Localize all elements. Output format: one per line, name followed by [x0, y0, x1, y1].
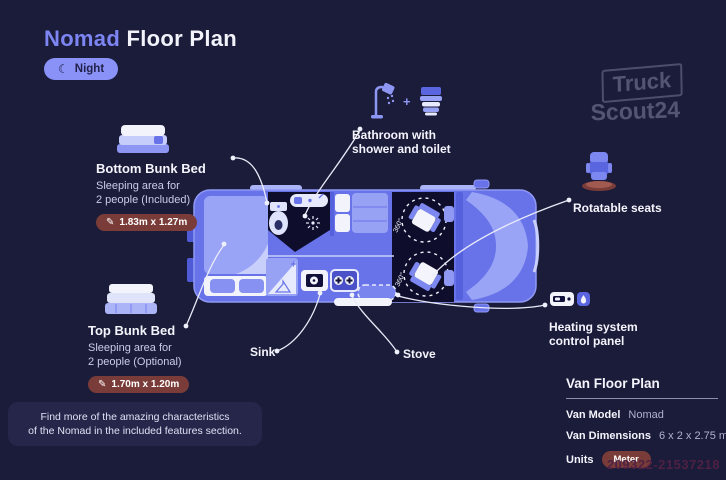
toilet-icon: [418, 86, 444, 116]
heating-label-1: Heating system: [549, 320, 638, 334]
rotatable-seat-icon: [577, 150, 621, 192]
connector-dots: [184, 127, 572, 355]
bottom-bunk-dimensions: 1.83m x 1.27m: [119, 217, 187, 228]
van-dimensions-value: 6 x 2 x 2.75 m: [659, 430, 726, 442]
rotatable-seats-label: Rotatable seats: [573, 201, 683, 215]
bottom-bunk-dimensions-badge: ✎ 1.83m x 1.27m: [96, 214, 197, 231]
info-row-dimensions: Van Dimensions 6 x 2 x 2.75 m: [566, 430, 718, 442]
stove-label: Stove: [403, 347, 436, 361]
sink-label: Sink: [250, 345, 275, 359]
callout-rotatable-seats: Rotatable seats: [573, 150, 683, 215]
connector-stove: [352, 296, 397, 352]
bottom-bunk-title: Bottom Bunk Bed: [96, 161, 231, 176]
features-note: Find more of the amazing characteristics…: [8, 402, 262, 446]
bottom-bunk-desc-2: 2 people (Included): [96, 194, 190, 206]
floor-plan-page: Nomad Floor Plan ☾ Night Truck Scout24: [0, 0, 726, 480]
bottom-bunk-desc-1: Sleeping area for: [96, 180, 180, 192]
van-model-value: Nomad: [628, 409, 663, 421]
info-panel-divider: [566, 398, 718, 399]
heating-panel-icon: [549, 290, 591, 308]
features-note-line1: Find more of the amazing characteristics: [8, 410, 262, 424]
info-panel-title: Van Floor Plan: [566, 376, 718, 391]
features-note-line2: of the Nomad in the included features se…: [8, 424, 262, 438]
listing-id: 209322-21537218: [607, 457, 720, 472]
heating-label-2: control panel: [549, 334, 624, 348]
top-bunk-desc-1: Sleeping area for: [88, 342, 172, 354]
bathroom-label-2: shower and toilet: [352, 142, 451, 156]
bathroom-label-1: Bathroom with: [352, 128, 436, 142]
van-model-label: Van Model: [566, 409, 620, 421]
top-bunk-desc-2: 2 people (Optional): [88, 356, 182, 368]
plus-icon: +: [403, 94, 411, 109]
van-dimensions-label: Van Dimensions: [566, 430, 651, 442]
connector-seats: [434, 200, 569, 274]
top-bunk-bed-icon: [102, 282, 160, 318]
ruler-icon: ✎: [106, 217, 114, 228]
top-bunk-dimensions: 1.70m x 1.20m: [111, 379, 179, 390]
connector-sink: [277, 294, 320, 351]
connector-bottom-bunk: [233, 158, 267, 202]
top-bunk-dimensions-badge: ✎ 1.70m x 1.20m: [88, 376, 189, 393]
ruler-icon-2: ✎: [98, 379, 106, 390]
shower-icon: [370, 82, 396, 120]
units-label: Units: [566, 454, 594, 466]
callout-bathroom: + Bathroom with shower and toilet: [352, 82, 472, 156]
connector-heating: [398, 296, 545, 308]
callout-heating: Heating system control panel: [549, 290, 659, 348]
top-bunk-title: Top Bunk Bed: [88, 323, 223, 338]
info-row-model: Van Model Nomad: [566, 409, 718, 421]
callout-top-bunk: Top Bunk Bed Sleeping area for 2 people …: [88, 282, 223, 393]
bottom-bunk-bed-icon: [114, 122, 172, 156]
callout-bottom-bunk: Bottom Bunk Bed Sleeping area for 2 peop…: [96, 122, 231, 231]
